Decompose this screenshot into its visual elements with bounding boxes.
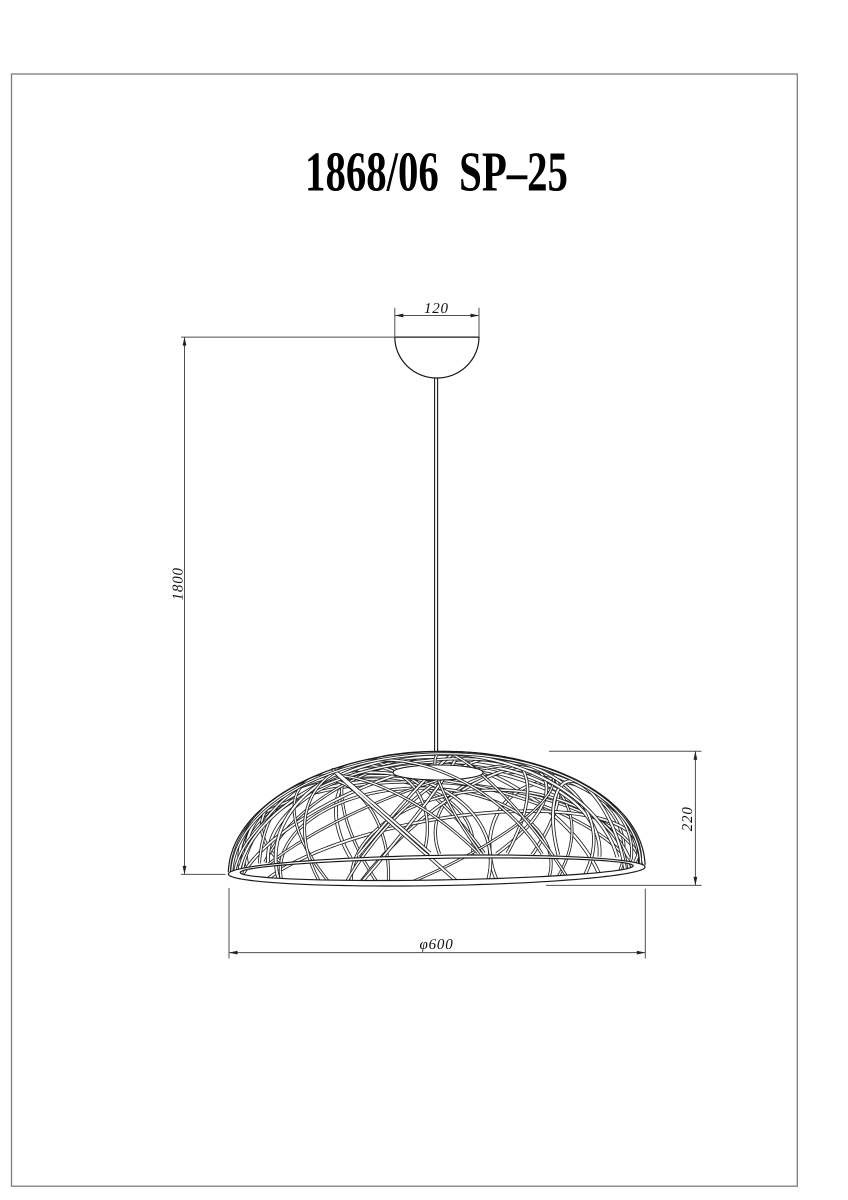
svg-text:120: 120	[424, 301, 449, 317]
svg-text:220: 220	[680, 806, 696, 831]
svg-text:1800: 1800	[171, 567, 187, 600]
svg-text:1868/06 SP–25: 1868/06 SP–25	[305, 142, 568, 204]
svg-text:φ600: φ600	[420, 937, 454, 953]
